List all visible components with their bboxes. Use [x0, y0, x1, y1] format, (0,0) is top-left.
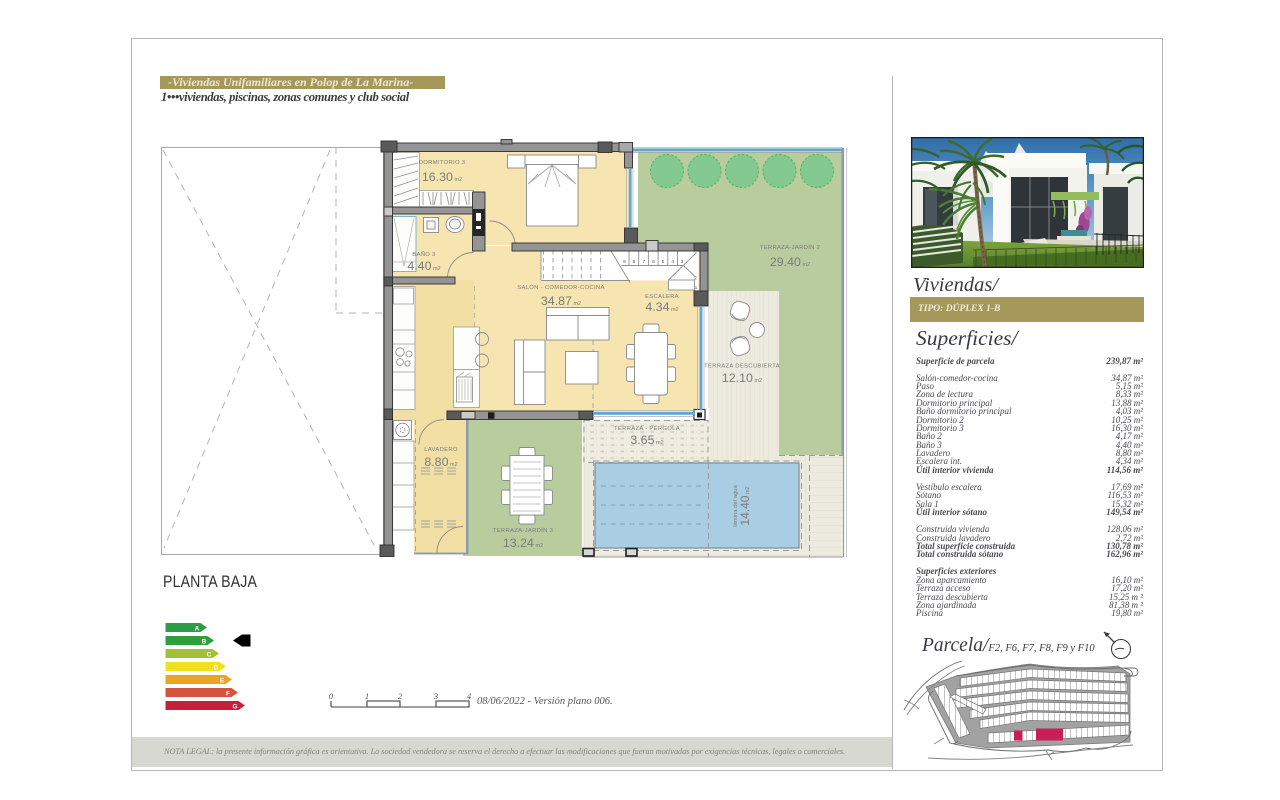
svg-text:4: 4 — [467, 691, 472, 701]
svg-text:4: 4 — [671, 259, 674, 265]
svg-text:E: E — [220, 678, 225, 685]
svg-text:TERRAZA-JARDÍN 2: TERRAZA-JARDÍN 2 — [760, 244, 820, 251]
svg-text:TERRAZA - PÉRGOLA: TERRAZA - PÉRGOLA — [614, 425, 680, 432]
svg-text:TERRAZA-JARDÍN 3: TERRAZA-JARDÍN 3 — [493, 527, 554, 534]
svg-text:A: A — [195, 626, 200, 633]
svg-text:C: C — [207, 652, 212, 659]
svg-text:SALÓN - COMEDOR-COCINA: SALÓN - COMEDOR-COCINA — [517, 284, 604, 291]
svg-text:3: 3 — [681, 259, 684, 265]
svg-text:5: 5 — [662, 259, 665, 265]
svg-text:1: 1 — [365, 691, 369, 701]
svg-text:G: G — [232, 704, 237, 711]
svg-text:D: D — [214, 665, 219, 672]
svg-text:BAÑO 3: BAÑO 3 — [412, 251, 436, 258]
svg-text:0: 0 — [329, 691, 334, 701]
svg-text:DORMITORIO 3: DORMITORIO 3 — [419, 160, 466, 166]
svg-text:8: 8 — [633, 259, 636, 265]
svg-text:B: B — [202, 639, 207, 646]
svg-text:2: 2 — [694, 276, 697, 282]
svg-text:TERRAZA DESCUBIERTA: TERRAZA DESCUBIERTA — [704, 364, 780, 370]
svg-text:2: 2 — [398, 691, 403, 701]
svg-text:F: F — [226, 691, 230, 698]
svg-text:LAVADERO: LAVADERO — [424, 447, 458, 453]
svg-text:6: 6 — [652, 259, 655, 265]
svg-text:1: 1 — [695, 285, 698, 291]
svg-text:9: 9 — [623, 259, 626, 265]
svg-text:7: 7 — [642, 259, 645, 265]
svg-text:3: 3 — [433, 691, 438, 701]
